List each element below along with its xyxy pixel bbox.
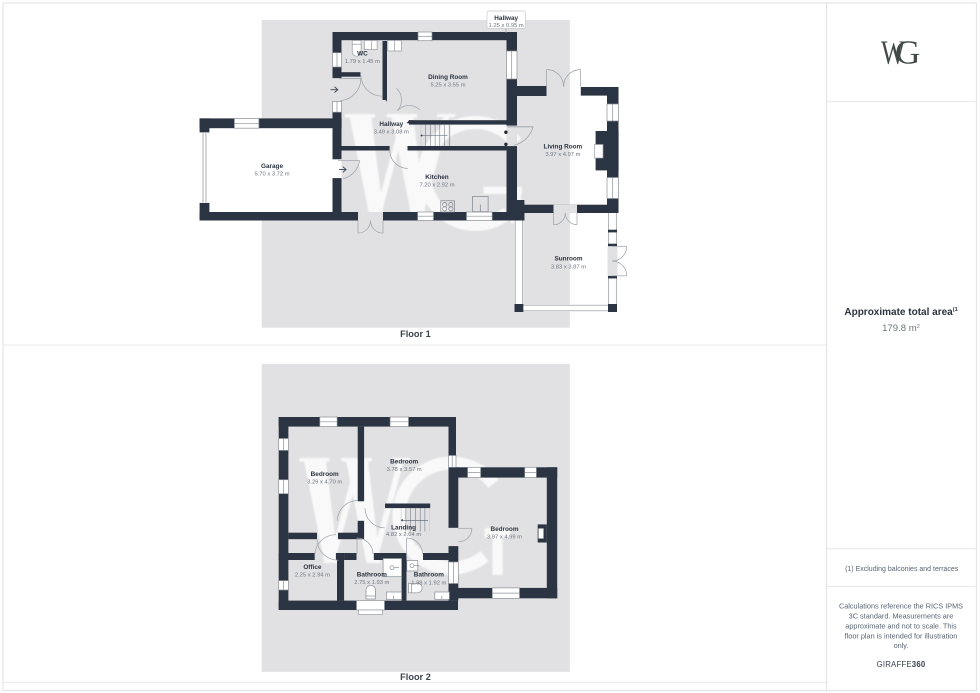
svg-text:Hallway: Hallway — [379, 121, 403, 128]
svg-text:Bedroom: Bedroom — [390, 459, 418, 466]
svg-text:GIRAFFE360: GIRAFFE360 — [877, 660, 926, 669]
svg-text:Landing: Landing — [391, 524, 416, 531]
svg-text:Living Room: Living Room — [544, 143, 583, 150]
svg-text:1.25 x 0.95 m: 1.25 x 0.95 m — [489, 23, 524, 29]
svg-text:Kitchen: Kitchen — [425, 174, 449, 181]
svg-text:Garage: Garage — [261, 163, 283, 170]
svg-text:7.20 x 2.92 m: 7.20 x 2.92 m — [419, 183, 454, 189]
svg-text:1.79 x 1.45 m: 1.79 x 1.45 m — [345, 59, 380, 65]
svg-text:3.49 x 3.08 m: 3.49 x 3.08 m — [374, 130, 409, 136]
svg-text:Calculations reference the RIC: Calculations reference the RICS IPMS — [839, 602, 963, 611]
svg-text:2.75 x 1.93 m: 2.75 x 1.93 m — [354, 580, 389, 586]
svg-text:179.8 m2: 179.8 m2 — [882, 323, 920, 334]
svg-text:5.70 x 3.72 m: 5.70 x 3.72 m — [254, 172, 289, 178]
svg-text:3.97 x 4.97 m: 3.97 x 4.97 m — [545, 152, 580, 158]
svg-text:4.82 x 2.04 m: 4.82 x 2.04 m — [386, 532, 421, 538]
svg-text:Office: Office — [303, 564, 322, 571]
svg-text:Sunroom: Sunroom — [554, 256, 582, 263]
svg-text:1.98 x 1.92 m: 1.98 x 1.92 m — [411, 580, 446, 586]
svg-text:3.78 x 3.57 m: 3.78 x 3.57 m — [387, 467, 422, 473]
svg-text:WC: WC — [357, 51, 368, 58]
svg-text:Floor 1: Floor 1 — [400, 329, 431, 339]
svg-text:Hallway: Hallway — [494, 15, 518, 22]
svg-text:3.83 x 3.87 m: 3.83 x 3.87 m — [551, 265, 586, 271]
svg-text:Dining Room: Dining Room — [428, 74, 468, 81]
svg-text:floor plan is intended for ill: floor plan is intended for illustration — [845, 631, 958, 640]
svg-text:approximate and not to scale.: approximate and not to scale. This — [845, 621, 957, 630]
svg-text:5.25 x 3.55 m: 5.25 x 3.55 m — [430, 83, 465, 89]
svg-text:3.29 x 4.70 m: 3.29 x 4.70 m — [307, 480, 342, 486]
svg-text:Bathroom: Bathroom — [414, 572, 444, 579]
svg-text:only.: only. — [894, 641, 909, 650]
svg-text:(1) Excluding balconies and te: (1) Excluding balconies and terraces — [845, 566, 959, 573]
svg-text:Floor 2: Floor 2 — [400, 672, 431, 682]
svg-text:Bedroom: Bedroom — [490, 526, 518, 533]
svg-text:3.97 x 4.99 m: 3.97 x 4.99 m — [487, 535, 522, 541]
svg-text:Bedroom: Bedroom — [311, 471, 339, 478]
svg-text:3C standard. Measurements are: 3C standard. Measurements are — [849, 611, 954, 620]
svg-text:Bathroom: Bathroom — [357, 571, 387, 578]
svg-text:2.25 x 2.94 m: 2.25 x 2.94 m — [295, 573, 330, 579]
svg-text:G: G — [895, 34, 920, 71]
svg-text:Approximate total area(1: Approximate total area(1 — [844, 307, 957, 318]
